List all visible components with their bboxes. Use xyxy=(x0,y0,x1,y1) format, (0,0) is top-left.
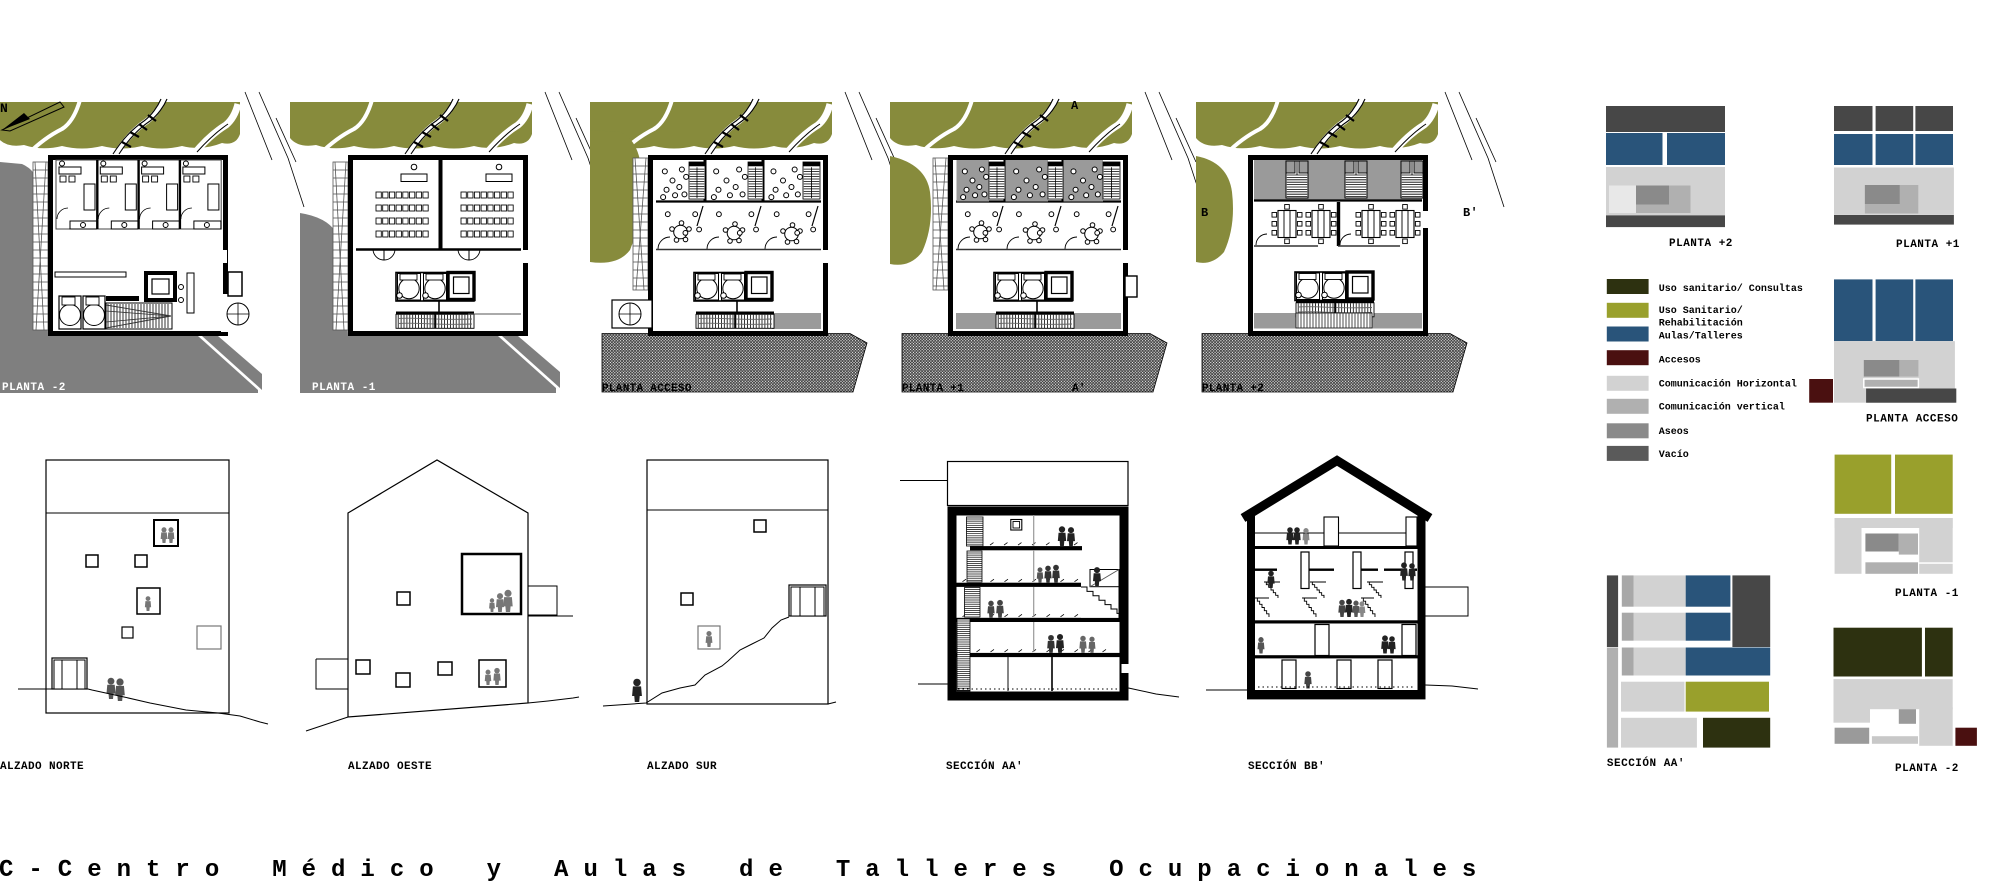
svg-text:PLANTA +2: PLANTA +2 xyxy=(1202,383,1264,395)
svg-text:PLANTA +1: PLANTA +1 xyxy=(1896,239,1960,251)
svg-text:A: A xyxy=(1071,99,1079,113)
svg-text:Rehabilitación: Rehabilitación xyxy=(1659,318,1743,330)
svg-text:A': A' xyxy=(1072,383,1086,395)
svg-text:Comunicación Horizontal: Comunicación Horizontal xyxy=(1659,379,1797,391)
svg-text:ALZADO SUR: ALZADO SUR xyxy=(647,761,717,773)
svg-text:ALZADO OESTE: ALZADO OESTE xyxy=(348,761,432,773)
svg-text:PLANTA +2: PLANTA +2 xyxy=(1669,238,1733,250)
svg-text:SECCIÓN BB': SECCIÓN BB' xyxy=(1248,759,1325,773)
svg-text:Aseos: Aseos xyxy=(1659,427,1689,438)
svg-text:Uso Sanitario/: Uso Sanitario/ xyxy=(1659,305,1743,317)
svg-text:PLANTA ACCESO: PLANTA ACCESO xyxy=(1866,414,1958,426)
svg-text:B: B xyxy=(1201,206,1209,220)
svg-text:PLANTA -2: PLANTA -2 xyxy=(1895,763,1959,775)
svg-text:PLANTA -1: PLANTA -1 xyxy=(312,382,376,394)
svg-text:PLANTA ACCESO: PLANTA ACCESO xyxy=(602,383,692,395)
svg-text:Uso sanitario/ Consultas: Uso sanitario/ Consultas xyxy=(1659,283,1803,295)
svg-text:Vacío: Vacío xyxy=(1659,449,1689,461)
svg-text:N: N xyxy=(0,101,8,116)
svg-text:Comunicación vertical: Comunicación vertical xyxy=(1659,402,1785,414)
svg-text:SECCIÓN AA': SECCIÓN AA' xyxy=(1607,756,1685,770)
svg-text:SECCIÓN AA': SECCIÓN AA' xyxy=(946,759,1023,773)
svg-text:B': B' xyxy=(1463,206,1478,220)
svg-text:PLANTA -1: PLANTA -1 xyxy=(1895,588,1959,600)
svg-text:Aulas/Talleres: Aulas/Talleres xyxy=(1659,331,1743,343)
svg-text:Accesos: Accesos xyxy=(1659,356,1701,367)
svg-text:PLANTA +1: PLANTA +1 xyxy=(902,383,964,395)
svg-text:C-Centro Médico y Aulas de Tal: C-Centro Médico y Aulas de Talleres Ocup… xyxy=(0,857,1491,884)
svg-text:PLANTA -2: PLANTA -2 xyxy=(2,382,66,394)
svg-text:ALZADO NORTE: ALZADO NORTE xyxy=(0,761,84,773)
